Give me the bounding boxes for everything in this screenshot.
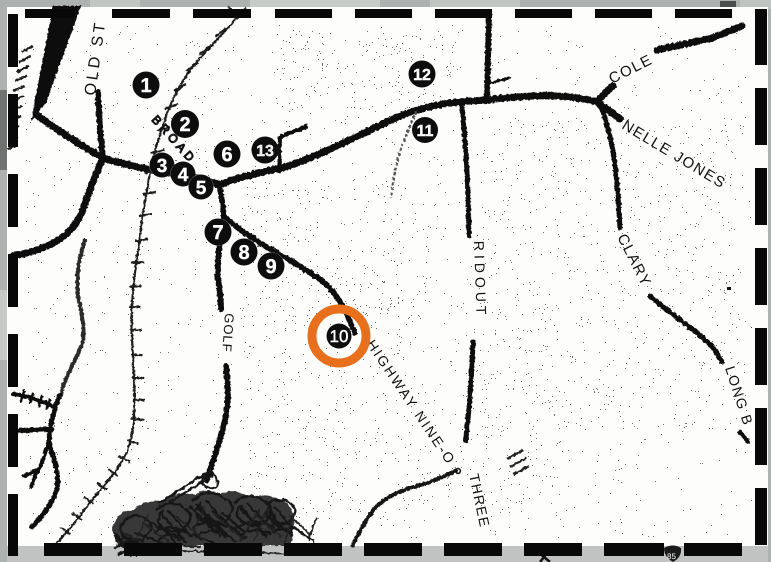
svg-text:10: 10 xyxy=(330,327,349,346)
svg-text:12: 12 xyxy=(413,67,431,84)
svg-text:13: 13 xyxy=(256,143,274,160)
svg-text:7: 7 xyxy=(212,222,223,244)
svg-text:2: 2 xyxy=(179,114,190,136)
svg-text:3: 3 xyxy=(157,156,168,177)
svg-text:11: 11 xyxy=(417,123,434,140)
svg-text:1: 1 xyxy=(140,75,151,97)
svg-text:6: 6 xyxy=(221,144,232,166)
svg-text:9: 9 xyxy=(265,256,276,278)
svg-text:5: 5 xyxy=(196,178,207,199)
svg-text:RIDOUT: RIDOUT xyxy=(471,241,490,319)
svg-text:4: 4 xyxy=(178,165,189,186)
svg-text:8: 8 xyxy=(238,242,249,264)
svg-text:GOLF: GOLF xyxy=(219,313,237,353)
svg-text:85: 85 xyxy=(667,552,676,561)
